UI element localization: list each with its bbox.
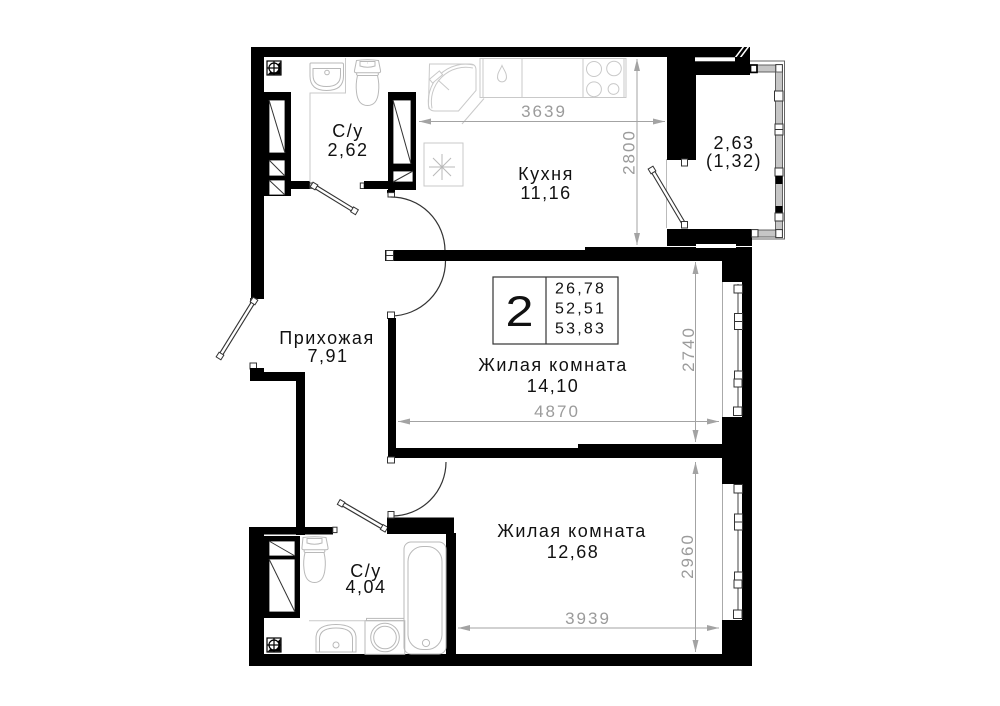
svg-text:14,10: 14,10 (527, 376, 580, 396)
svg-text:53,83: 53,83 (555, 321, 606, 338)
svg-text:Кухня: Кухня (518, 164, 574, 184)
svg-text:12,68: 12,68 (547, 542, 600, 562)
svg-text:4,04: 4,04 (345, 577, 386, 597)
svg-text:2800: 2800 (620, 129, 639, 175)
svg-text:Жилая комната: Жилая комната (478, 355, 628, 375)
svg-text:2,63: 2,63 (713, 133, 754, 153)
svg-text:4870: 4870 (534, 402, 580, 421)
svg-text:11,16: 11,16 (520, 183, 571, 203)
svg-text:2: 2 (506, 288, 534, 336)
svg-text:Жилая комната: Жилая комната (497, 521, 647, 541)
svg-text:2960: 2960 (678, 533, 697, 579)
svg-text:7,91: 7,91 (307, 346, 348, 366)
svg-text:(1,32): (1,32) (706, 151, 762, 171)
svg-text:52,51: 52,51 (555, 301, 606, 318)
svg-text:С/у: С/у (332, 121, 364, 141)
svg-text:3639: 3639 (521, 102, 567, 121)
svg-text:26,78: 26,78 (555, 281, 606, 298)
svg-text:2740: 2740 (679, 326, 698, 372)
svg-text:Прихожая: Прихожая (279, 328, 374, 348)
svg-text:2,62: 2,62 (327, 140, 368, 160)
svg-text:3939: 3939 (565, 609, 611, 628)
